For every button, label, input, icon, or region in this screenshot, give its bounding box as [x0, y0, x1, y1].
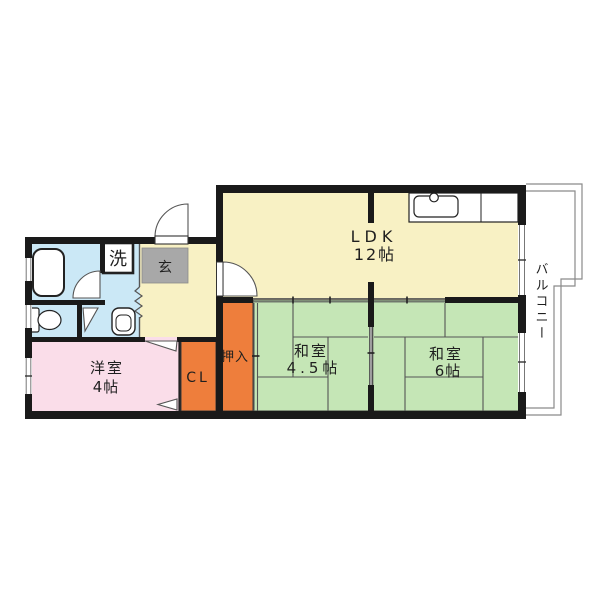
door-arc-icon — [155, 204, 188, 237]
wall — [25, 394, 32, 419]
wall — [518, 295, 526, 333]
label-oshiire: 押入 — [221, 350, 249, 365]
wall — [25, 237, 155, 244]
window-toilet — [25, 305, 32, 328]
label-youshitsu-size: 4帖 — [93, 378, 120, 396]
label-youshitsu-name: 洋室 — [90, 359, 124, 377]
window-bathroom — [25, 258, 32, 281]
label-washitsu6-name: 和室 — [429, 345, 463, 363]
door-leaf — [217, 262, 224, 296]
wall — [216, 185, 223, 262]
label-cl: CL — [186, 370, 210, 386]
wall — [25, 281, 32, 305]
toilet-icon — [29, 308, 61, 332]
kitchen-counter — [409, 193, 518, 222]
wall — [25, 411, 526, 419]
wall — [77, 305, 82, 337]
toilet-bowl — [38, 311, 61, 330]
wall — [25, 237, 32, 258]
entrance-door — [155, 204, 188, 244]
wall — [25, 337, 145, 342]
label-ldk-name: LDK — [351, 227, 398, 246]
window-ldk-balcony — [518, 225, 526, 295]
wall — [100, 242, 105, 273]
window-youshitsu — [25, 358, 32, 394]
wall — [177, 337, 222, 342]
label-washitsu6-size: 6帖 — [435, 362, 462, 380]
label-laundry: 洗 — [109, 249, 127, 270]
label-ldk-size: 12帖 — [354, 245, 396, 264]
washbasin-icon — [112, 308, 135, 335]
wall — [25, 328, 32, 358]
window-washitsu6-balcony — [518, 333, 526, 392]
wall — [368, 193, 374, 223]
wall — [445, 297, 526, 303]
door-leaf — [155, 236, 188, 244]
label-genkan: 玄 — [158, 259, 172, 276]
wall — [368, 385, 374, 411]
wall — [518, 392, 526, 419]
wall — [518, 185, 526, 225]
washbasin-inner — [116, 315, 131, 331]
wall — [25, 300, 105, 305]
wall — [216, 185, 526, 193]
faucet-icon — [430, 193, 439, 202]
wall — [368, 282, 374, 327]
label-washitsu45-size: 4.5帖 — [287, 359, 342, 377]
floorplan-drawing: LDK 12帖 和室 4.5帖 和室 6帖 洋室 4帖 押入 CL 玄 洗 バル… — [0, 0, 600, 600]
label-washitsu45-name: 和室 — [294, 342, 328, 360]
bathtub-icon — [33, 249, 64, 296]
floorplan-page: LDK 12帖 和室 4.5帖 和室 6帖 洋室 4帖 押入 CL 玄 洗 バル… — [0, 0, 600, 600]
label-balcony: バルコニー — [533, 262, 549, 342]
